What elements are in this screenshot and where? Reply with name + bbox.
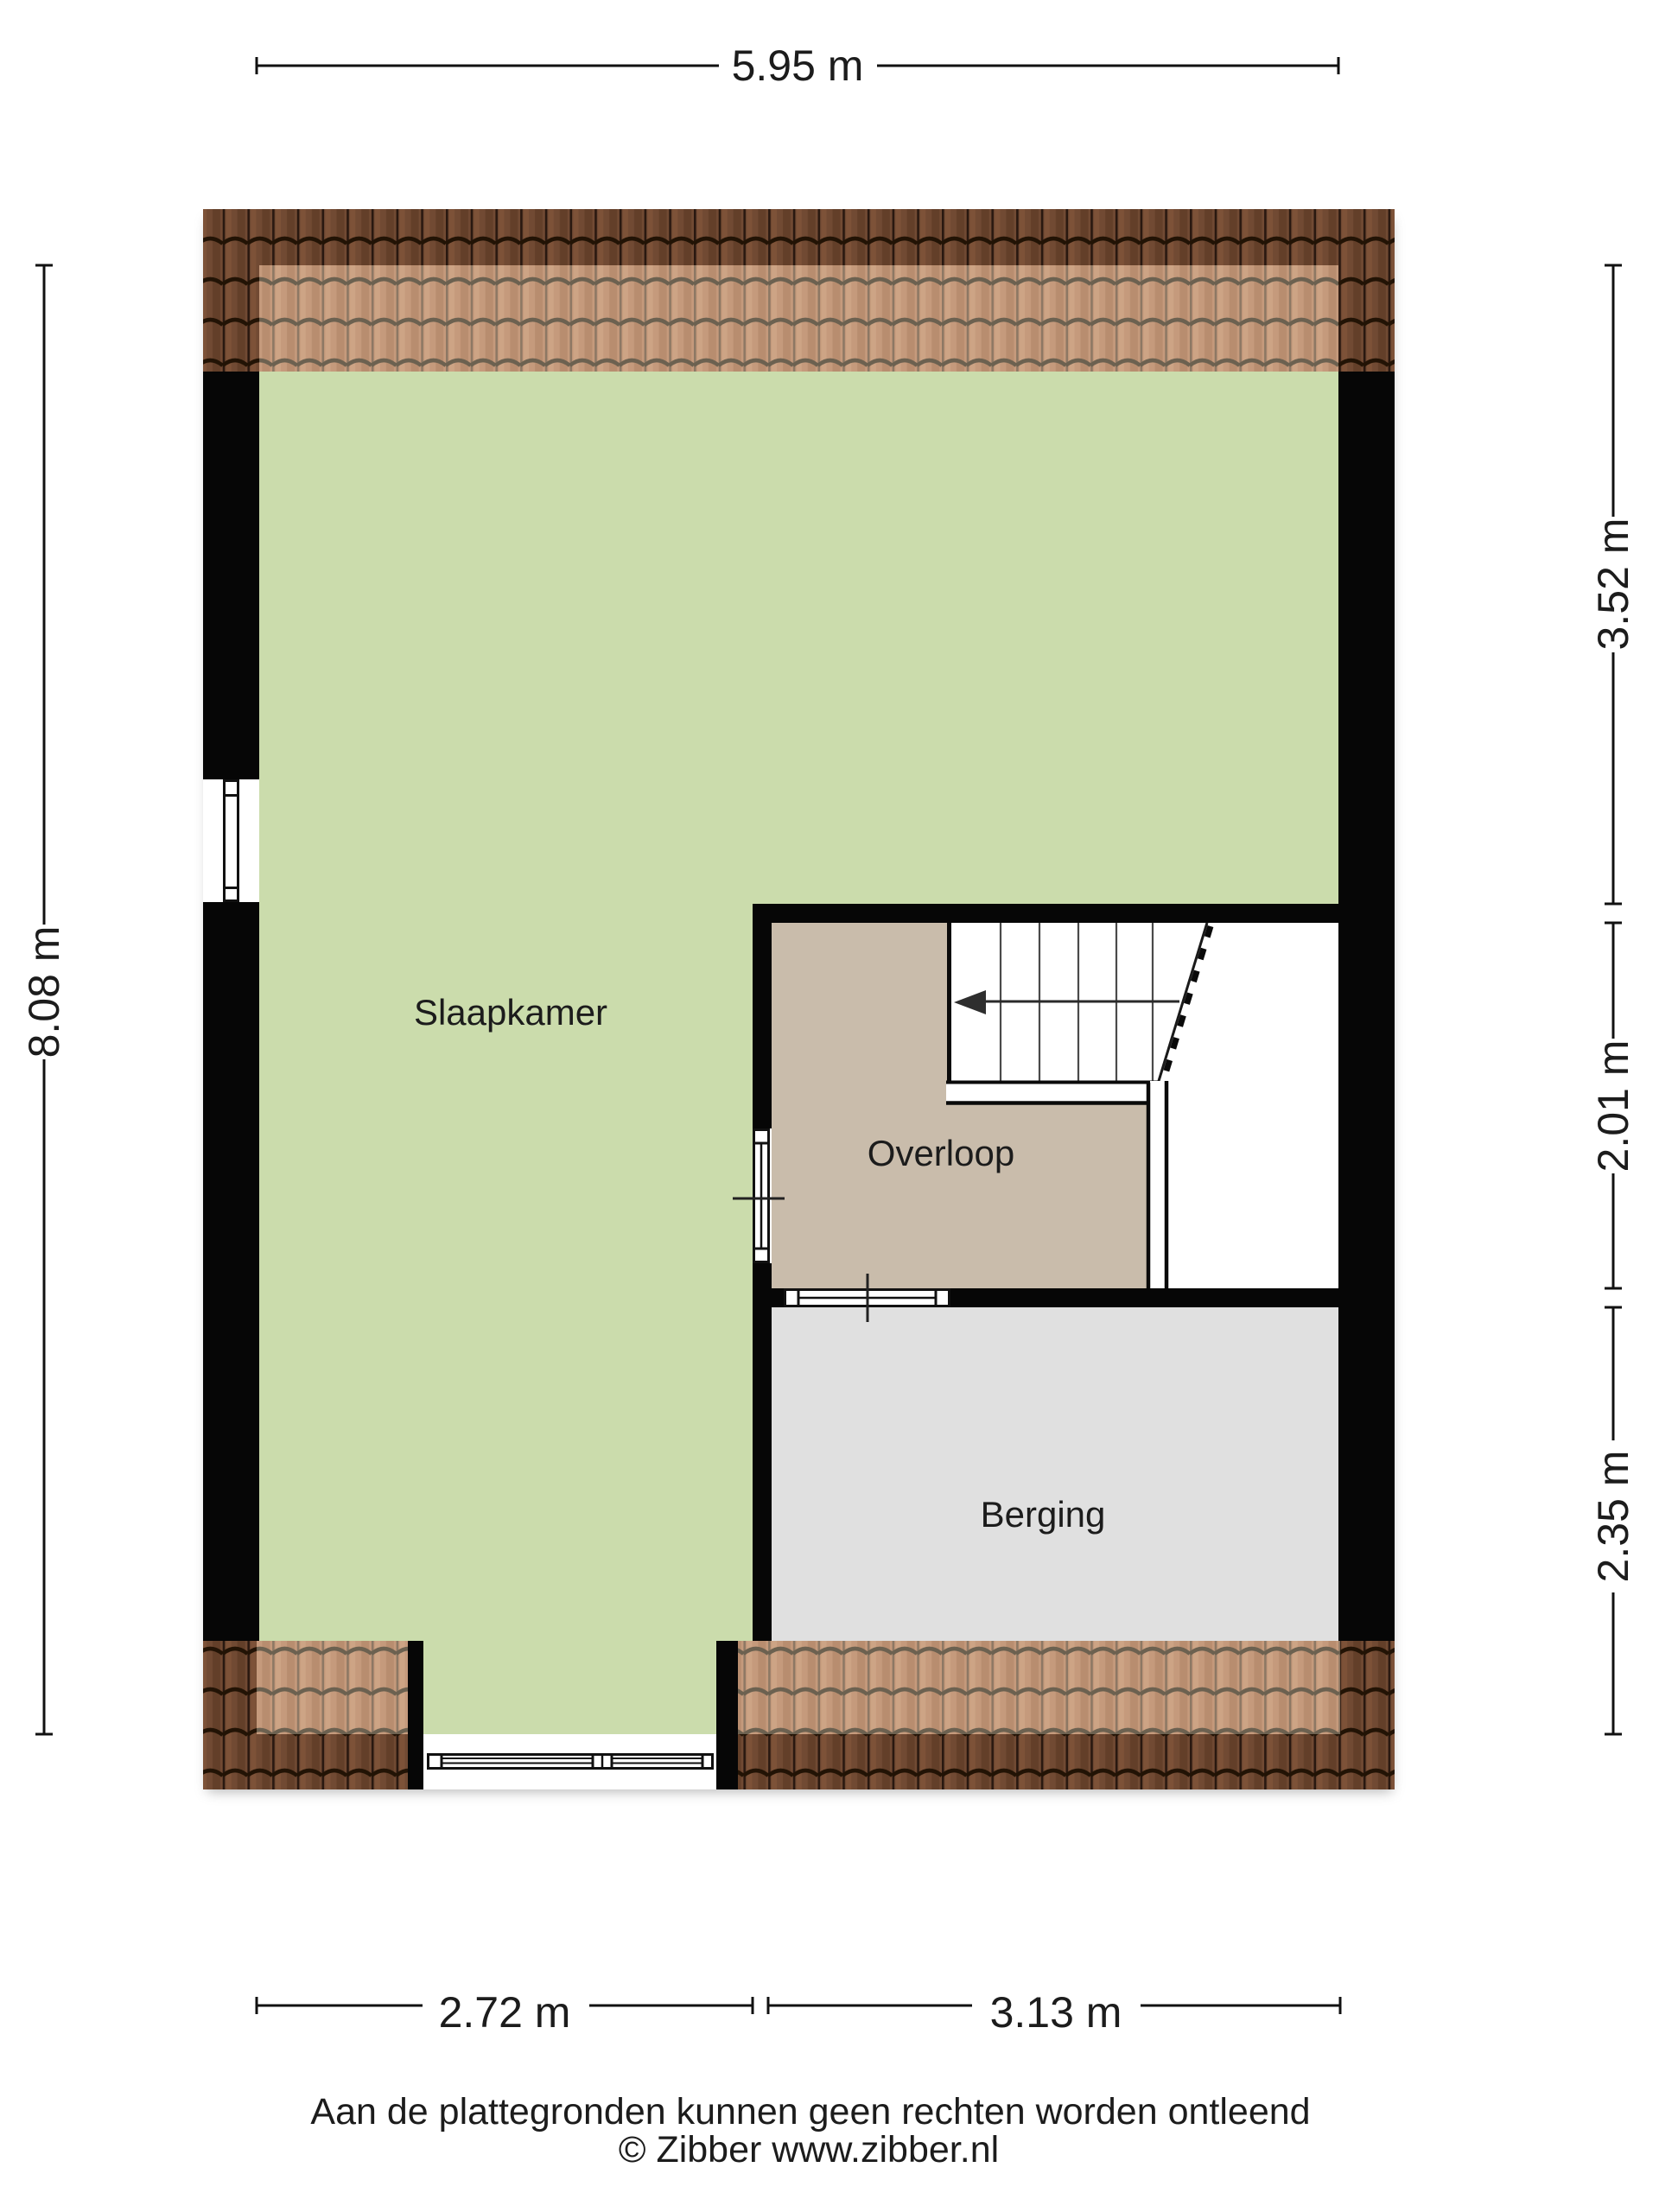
svg-text:5.95 m: 5.95 m	[732, 41, 864, 90]
svg-text:© Zibber www.zibber.nl: © Zibber www.zibber.nl	[619, 2129, 999, 2171]
svg-text:3.13 m: 3.13 m	[990, 1988, 1122, 2037]
svg-text:Berging: Berging	[981, 1494, 1106, 1535]
svg-text:3.52 m: 3.52 m	[1589, 518, 1637, 651]
svg-text:Slaapkamer: Slaapkamer	[414, 992, 607, 1033]
svg-text:2.35 m: 2.35 m	[1589, 1451, 1637, 1583]
svg-text:Overloop: Overloop	[868, 1133, 1014, 1173]
svg-text:Aan de plattegronden kunnen ge: Aan de plattegronden kunnen geen rechten…	[310, 2091, 1310, 2133]
svg-text:2.72 m: 2.72 m	[439, 1988, 571, 2037]
svg-text:2.01 m: 2.01 m	[1589, 1040, 1637, 1173]
svg-text:8.08 m: 8.08 m	[20, 926, 68, 1058]
